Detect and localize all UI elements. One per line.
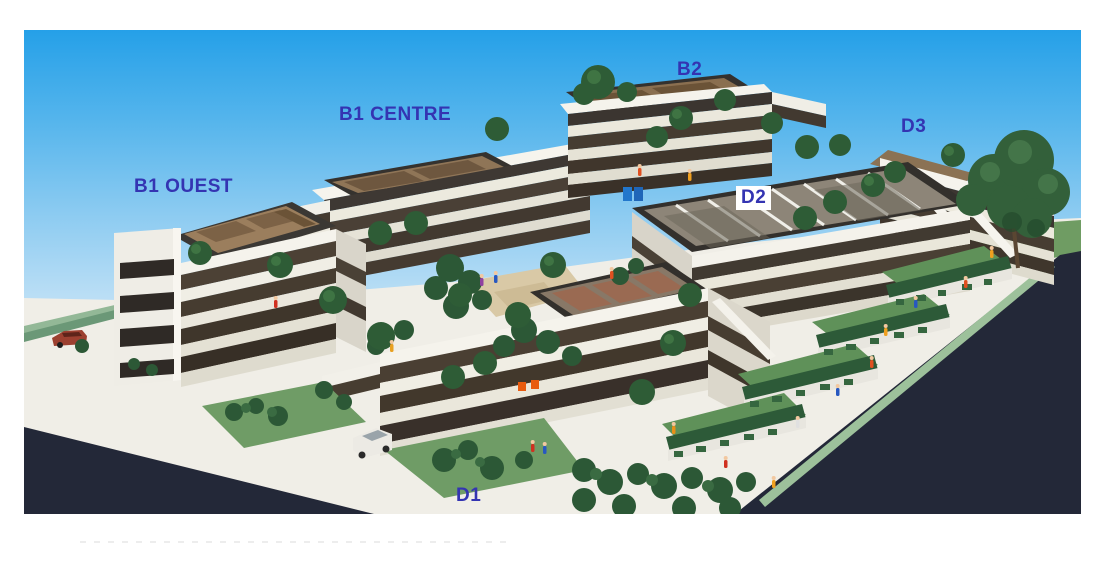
model-scene: [24, 30, 1081, 514]
orange-sign: [531, 380, 539, 389]
label-b2: B2: [677, 60, 702, 79]
label-b1-ouest: B1 OUEST: [134, 177, 233, 196]
orange-sign: [518, 382, 526, 391]
label-d2: D2: [736, 186, 771, 210]
blue-door-panels: [623, 187, 632, 201]
model-photograph: [24, 30, 1081, 514]
label-d1: D1: [456, 486, 481, 505]
scan-artifact-line: [80, 541, 510, 543]
label-b1-centre: B1 CENTRE: [339, 105, 451, 124]
label-d3: D3: [901, 117, 926, 136]
scanned-photo-page: B1 OUEST B1 CENTRE B2 D3 D2 D1: [0, 0, 1109, 564]
